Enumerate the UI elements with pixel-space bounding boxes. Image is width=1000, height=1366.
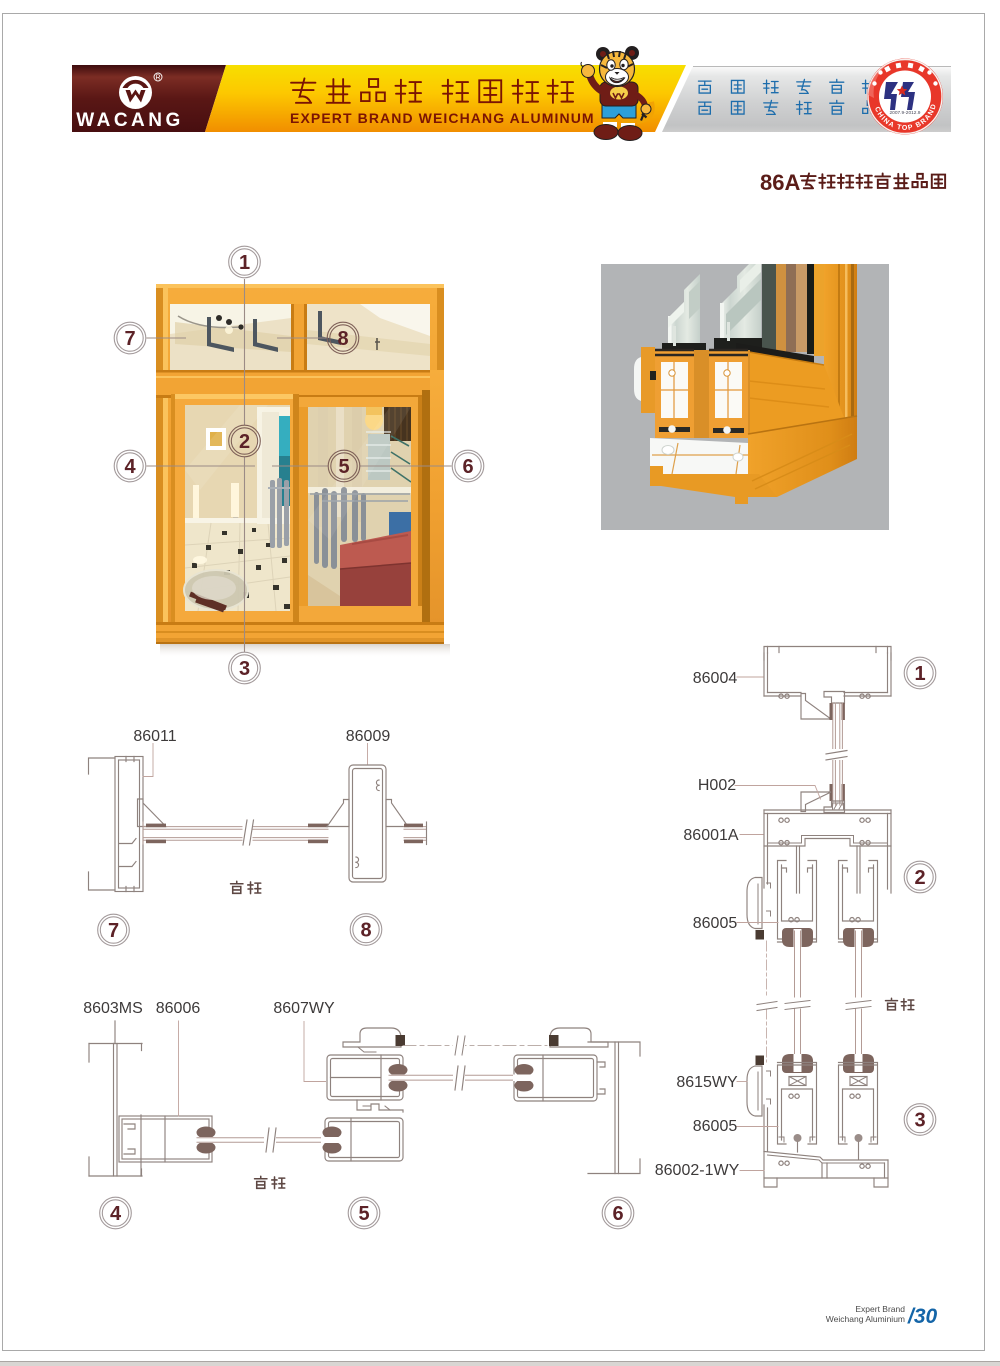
svg-text:86A: 86A — [760, 170, 800, 195]
svg-text:3: 3 — [239, 658, 250, 680]
svg-text:86005: 86005 — [693, 1118, 738, 1135]
svg-text:86009: 86009 — [346, 728, 391, 745]
svg-text:6: 6 — [612, 1203, 623, 1225]
svg-text:7: 7 — [108, 920, 119, 942]
svg-text:8: 8 — [337, 328, 348, 350]
svg-text:86004: 86004 — [693, 670, 738, 687]
svg-text:8: 8 — [360, 920, 371, 942]
svg-text:86005: 86005 — [693, 915, 738, 932]
svg-text:86011: 86011 — [133, 728, 176, 745]
svg-text:4: 4 — [110, 1203, 122, 1225]
svg-text:6: 6 — [462, 456, 473, 478]
svg-text:1: 1 — [239, 252, 250, 274]
svg-text:2: 2 — [914, 867, 925, 889]
svg-text:3: 3 — [914, 1110, 925, 1132]
svg-text:86001A: 86001A — [683, 827, 738, 844]
svg-text:5: 5 — [338, 456, 349, 478]
svg-text:86006: 86006 — [156, 1000, 201, 1017]
svg-text:/30: /30 — [907, 1305, 938, 1328]
svg-text:2007.9-2012.9: 2007.9-2012.9 — [890, 110, 921, 116]
svg-text:1: 1 — [914, 663, 925, 685]
svg-text:86002-1WY: 86002-1WY — [655, 1162, 740, 1179]
svg-text:Weichang Aluminium: Weichang Aluminium — [826, 1314, 905, 1324]
svg-text:Expert Brand: Expert Brand — [855, 1304, 905, 1314]
svg-text:7: 7 — [124, 328, 135, 350]
svg-text:8615WY: 8615WY — [676, 1074, 738, 1091]
svg-text:5: 5 — [358, 1203, 369, 1225]
svg-text:2: 2 — [239, 431, 250, 453]
svg-text:4: 4 — [124, 456, 136, 478]
svg-text:8607WY: 8607WY — [273, 1000, 335, 1017]
svg-text:H002: H002 — [698, 777, 736, 794]
svg-text:8603MS: 8603MS — [83, 1000, 143, 1017]
svg-text:EXPERT BRAND WEICHANG ALUMINUM: EXPERT BRAND WEICHANG ALUMINUM — [290, 110, 595, 126]
svg-text:WACANG: WACANG — [76, 110, 184, 131]
svg-text:R: R — [155, 75, 160, 82]
